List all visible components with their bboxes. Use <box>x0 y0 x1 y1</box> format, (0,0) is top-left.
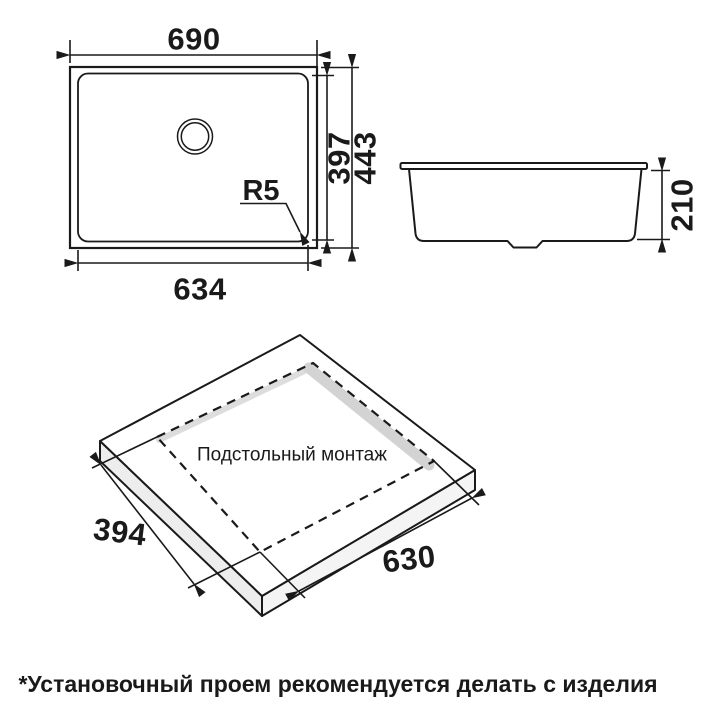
dim-cutout-length-value: 630 <box>380 538 437 579</box>
dim-bowl-depth: 210 <box>637 171 700 240</box>
footnote: *Установочный проем рекомендуется делать… <box>18 671 657 697</box>
dim-outer-width: 690 <box>70 22 317 67</box>
dim-inner-width: 634 <box>78 245 308 307</box>
technical-drawing-page: 690 634 397 443 <box>0 0 720 720</box>
dim-cutout-width-value: 394 <box>91 511 148 552</box>
isometric-cutout-view: Подстольный монтаж 394 630 <box>91 335 479 616</box>
sink-profile-rim <box>401 163 648 169</box>
dim-inner-width-value: 634 <box>173 272 226 307</box>
mount-type-label: Подстольный монтаж <box>197 445 387 466</box>
corner-radius-value: R5 <box>242 175 279 207</box>
dim-outer-height-value: 443 <box>348 131 383 184</box>
sink-dimension-diagram: 690 634 397 443 <box>0 0 720 720</box>
top-view: 690 634 397 443 <box>70 22 383 307</box>
sink-profile-body <box>409 169 642 248</box>
dim-outer-width-value: 690 <box>167 22 220 57</box>
dim-bowl-depth-value: 210 <box>665 178 700 231</box>
sink-bowl <box>78 74 308 242</box>
side-view: 210 <box>401 163 700 248</box>
